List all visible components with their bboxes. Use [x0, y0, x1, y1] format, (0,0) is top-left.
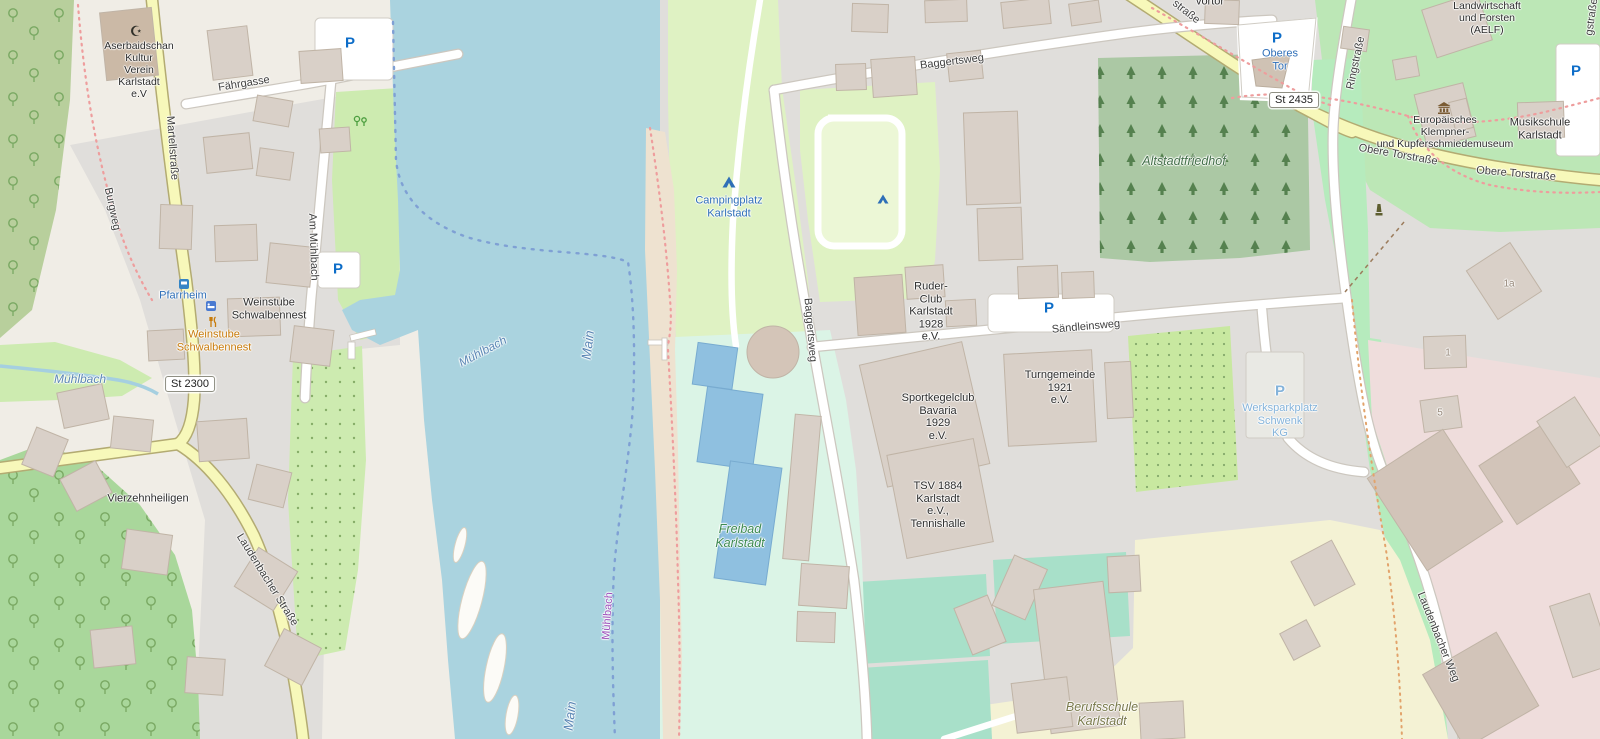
label-muehlbach-stream: Mühlbach [54, 373, 106, 387]
label-aelf: Ernährung, Landwirtschaft und Forsten (A… [1453, 0, 1521, 37]
parking-icon-oberes-tor: P [1272, 29, 1282, 46]
parking-icon-saendleinsweg: P [1044, 299, 1054, 316]
label-werksparkplatz: Werksparkplatz Schwenk KG [1242, 402, 1318, 440]
label-vortor-fragment: vortor [1196, 0, 1224, 8]
parking-icon-faehrgasse: P [345, 34, 355, 51]
mosque-icon: ☪ [130, 25, 143, 39]
museum-icon [1437, 102, 1452, 115]
label-berufsschule: Berufsschule Karlstadt [1066, 700, 1138, 729]
label-campingplatz: Campingplatz Karlstadt [695, 194, 762, 219]
parking-icon-am-muehlbach: P [333, 260, 343, 277]
road-shield-st2435: St 2435 [1269, 92, 1319, 108]
label-weinstube-poi: Weinstube Schwalbennest [177, 328, 252, 353]
label-altstadtfriedhof: Altstadtfriedhof [1142, 154, 1225, 168]
label-freibad: Freibad Karlstadt [715, 522, 764, 551]
house-number-1: 1 [1445, 347, 1451, 358]
park-trees-icon [353, 115, 369, 127]
restaurant-icon [208, 316, 219, 328]
bus-stop-icon [179, 279, 190, 290]
map-canvas[interactable]: ☪ Aserbaidschan Kultur Verein Karlstadt … [0, 0, 1600, 739]
label-sportkegelclub: Sportkegelclub Bavaria 1929 e.V. [902, 392, 975, 442]
label-turngemeinde: Turngemeinde 1921 e.V. [1025, 369, 1096, 407]
label-museum: Europäisches Klempner- und Kupferschmied… [1377, 115, 1514, 151]
label-vierzehnheiligen: Vierzehnheiligen [107, 493, 188, 506]
parking-icon-werksparkplatz: P [1275, 382, 1285, 399]
label-tsv: TSV 1884 Karlstadt e.V., Tennishalle [910, 480, 965, 530]
campsite-tent-icon [722, 176, 737, 189]
parking-icon-musikschule: P [1571, 62, 1581, 79]
house-number-1a: 1a [1503, 278, 1514, 289]
guesthouse-icon [206, 301, 217, 312]
road-shield-st2300: St 2300 [165, 376, 215, 392]
label-kultur-verein: Aserbaidschan Kultur Verein Karlstadt e.… [104, 41, 173, 101]
campsite-tent-icon-2 [877, 194, 890, 205]
label-ruder-club: Ruder- Club Karlstadt 1928 e.V. [909, 281, 952, 344]
label-oberes-tor: Oberes Tor [1262, 47, 1298, 72]
label-pfarrheim: Pfarrheim [159, 290, 207, 303]
memorial-icon [1375, 204, 1384, 217]
label-weinstube-name: Weinstube Schwalbennest [232, 296, 307, 321]
map-tiles [0, 0, 1600, 739]
house-number-5: 5 [1437, 407, 1443, 418]
label-musikschule: Musikschule Karlstadt [1510, 116, 1571, 141]
street-am-muehlbach: Am Mühlbach [306, 213, 321, 281]
